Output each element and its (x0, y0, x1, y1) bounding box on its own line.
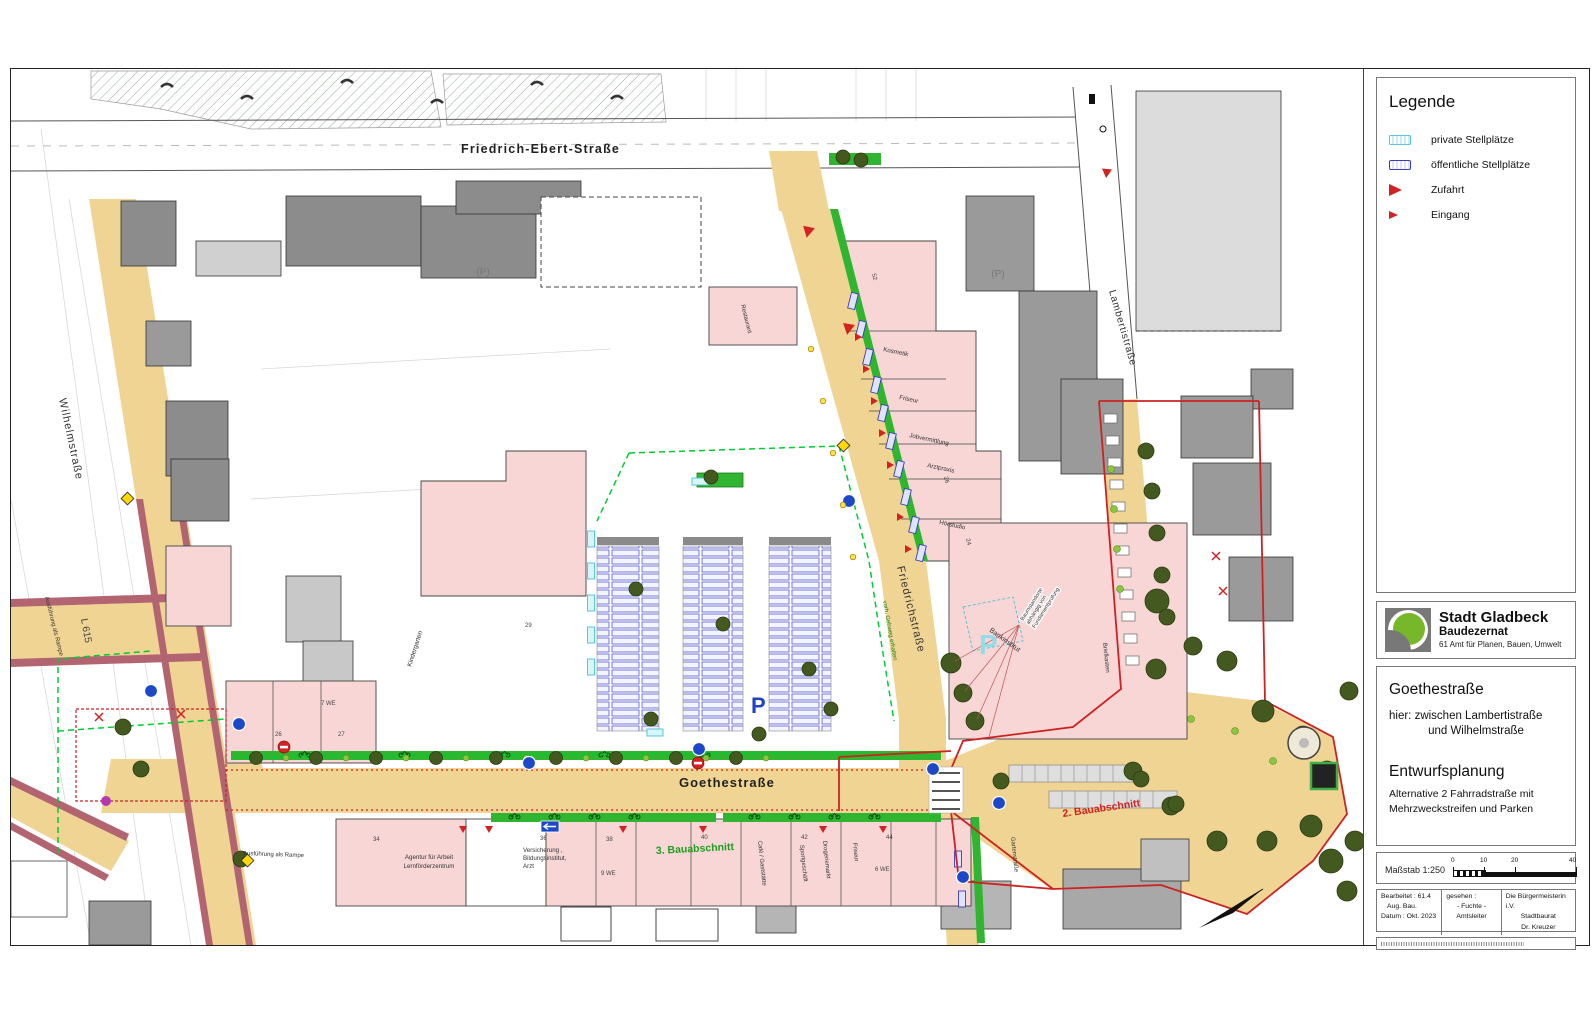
scale-label: Maßstab 1:250 (1385, 865, 1453, 875)
legend-item-zufahrt: Zufahrt (1389, 184, 1563, 196)
poi-kindergarten: Kindergarten (406, 630, 424, 668)
scale-box: Maßstab 1:250 0 10 20 40 (1376, 852, 1576, 884)
svg-text:40: 40 (701, 835, 708, 841)
legend-item-private-parking: private Stellplätze (1389, 134, 1563, 146)
note-rampe-2: Ausführung als Rampe (243, 851, 305, 859)
project-location-line1: hier: zwischen Lambertistraße (1389, 709, 1563, 725)
parking-existing-symbol-1: (P) (476, 267, 489, 278)
site-plan-drawing: Friedrich-Ebert-Straße Goethestraße Wilh… (11, 69, 1363, 945)
poi-versicherung-line1: Versicherung , (523, 847, 563, 854)
agency-city: Stadt Gladbeck (1439, 610, 1561, 627)
central-parking-lot (597, 473, 831, 731)
svg-text:44: 44 (886, 835, 893, 841)
svg-text:6 WE: 6 WE (875, 867, 890, 873)
svg-text:9 WE: 9 WE (601, 871, 616, 877)
svg-text:27: 27 (338, 732, 345, 738)
access-triangle-icon (1389, 184, 1402, 196)
legend-item-eingang: Eingang (1389, 209, 1563, 221)
parking-existing-symbol-2: (P) (991, 269, 1004, 280)
title-panel: Legende private Stellplätze öffentliche … (1363, 69, 1589, 945)
plan-variant-line1: Alternative 2 Fahrradstraße mit (1389, 787, 1563, 802)
street-label-friedrich-ebert: Friedrich-Ebert-Straße (461, 142, 620, 156)
parking-p-private: P (979, 629, 998, 660)
approval-edited-cell: Bearbeitet : 61.4 Aug. Bau. Datum : Okt.… (1377, 890, 1442, 935)
svg-text:36: 36 (540, 836, 547, 842)
svg-text:42: 42 (801, 835, 808, 841)
approval-box: Bearbeitet : 61.4 Aug. Bau. Datum : Okt.… (1376, 889, 1576, 932)
poi-versicherung-line3: Arzt (523, 863, 534, 870)
approval-seen-cell: gesehen : - Fuchte - Amtsleiter (1442, 890, 1501, 935)
agency-box: Stadt Gladbeck Baudezernat 61 Amt für Pl… (1376, 601, 1576, 659)
street-label-wilhelm: Wilhelmstraße (56, 397, 85, 481)
parking-p-public: P (751, 693, 766, 718)
plan-variant-line2: Mehrzweckstreifen und Parken (1389, 802, 1563, 817)
poi-agentur-line2: Lernförderzentrum (404, 863, 455, 870)
svg-text:38: 38 (606, 837, 613, 843)
svg-text:26: 26 (275, 732, 282, 738)
agency-department: Baudezernat (1439, 626, 1561, 640)
street-label-goethe: Goethestraße (679, 775, 775, 790)
legend-item-public-parking: öffentliche Stellplätze (1389, 159, 1563, 171)
entrance-triangle-icon (1389, 211, 1398, 219)
scale-bar: 0 10 20 40 (1453, 857, 1577, 879)
agency-office: 61 Amt für Planen, Bauen, Umwelt (1439, 640, 1561, 650)
project-title-box: Goethestraße hier: zwischen Lambertistra… (1376, 666, 1576, 846)
blue-arrow-sign (541, 821, 559, 832)
poi-versicherung-line2: Bildungsinstitut, (523, 855, 567, 862)
fine-print-text (1381, 942, 1524, 946)
poi-agentur-line1: Agentur für Arbeit (405, 854, 453, 861)
utility-marker (101, 796, 111, 806)
project-street: Goethestraße (1389, 681, 1563, 699)
svg-text:34: 34 (373, 837, 380, 843)
legend-box: Legende private Stellplätze öffentliche … (1376, 77, 1576, 593)
plan-type: Entwurfsplanung (1389, 763, 1563, 781)
plan-sheet: Friedrich-Ebert-Straße Goethestraße Wilh… (10, 68, 1590, 946)
svg-text:29: 29 (525, 623, 532, 629)
private-parking-stamp-icon (1389, 135, 1411, 145)
project-location-line2: und Wilhelmstraße (1389, 725, 1563, 737)
public-parking-stamp-icon (1389, 160, 1411, 170)
svg-text:7 WE: 7 WE (321, 701, 336, 707)
fine-print-box (1376, 937, 1576, 950)
city-logo-icon (1385, 608, 1431, 652)
legend-title: Legende (1389, 92, 1563, 112)
approval-mayor-cell: Die Bürgermeisterin i.V. Stadtbaurat Dr.… (1502, 890, 1575, 935)
